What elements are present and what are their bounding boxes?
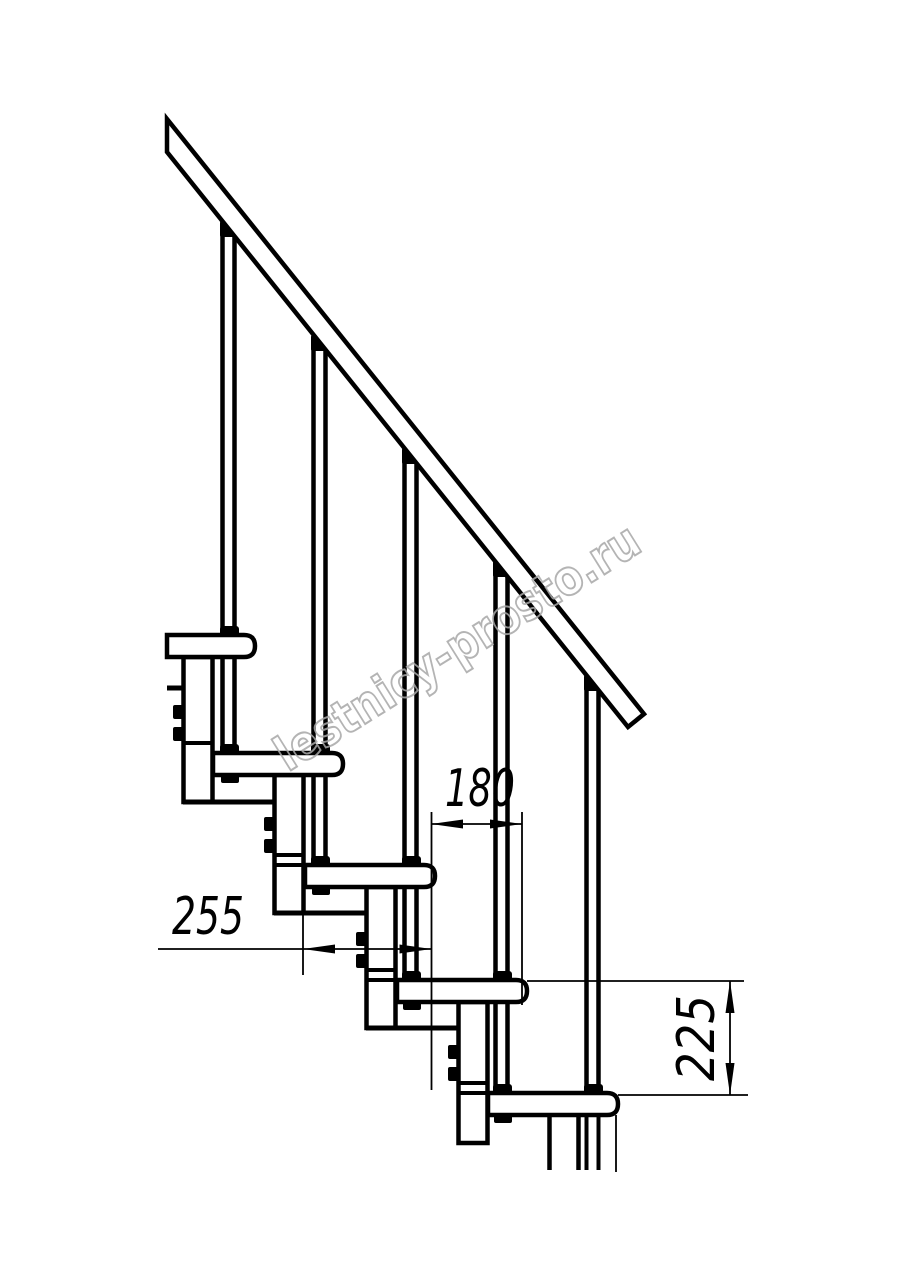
arrowhead-left-icon [431, 820, 463, 829]
column-bolt-icon [264, 817, 275, 831]
baluster-flange-icon [220, 744, 239, 755]
dimension-225: 225 [527, 981, 748, 1095]
dimension-label-run: 180 [445, 759, 515, 819]
baluster-1 [223, 225, 235, 758]
baluster-2 [314, 339, 326, 870]
column-bolt-icon [264, 839, 275, 853]
baluster-flange-icon [311, 856, 330, 867]
dimension-label-depth: 255 [172, 887, 244, 947]
baluster-5 [587, 679, 599, 1095]
tread-4 [397, 980, 527, 1002]
column-bolt-icon [173, 705, 184, 719]
staircase-drawing-canvas: 180 255 225 lestnicy-prosto.ru [0, 0, 914, 1280]
tread-1 [167, 635, 255, 657]
baluster-3 [405, 452, 417, 985]
baluster-flange-icon [402, 971, 421, 982]
column-bolt-icon [356, 954, 367, 968]
arrowhead-left-icon [303, 945, 335, 954]
tread-5 [488, 1093, 618, 1115]
column-bolt-icon [356, 932, 367, 946]
column-1 [184, 657, 213, 802]
baluster-flange-icon [493, 971, 512, 982]
baluster-flange-icon [493, 1084, 512, 1095]
column-bolt-icon [448, 1045, 459, 1059]
column-3 [367, 887, 396, 1028]
column-4 [459, 1002, 488, 1143]
tread-3 [305, 865, 435, 887]
baluster-nut-icon [312, 886, 330, 895]
baluster-nut-icon [494, 1114, 512, 1123]
staircase-technical-drawing: 180 255 225 lestnicy-prosto.ru [0, 0, 914, 1280]
baluster-nut-icon [221, 774, 239, 783]
column-2 [275, 775, 304, 913]
column-bolt-icon [448, 1067, 459, 1081]
baluster-nut-icon [403, 1001, 421, 1010]
baluster-flange-icon [402, 856, 421, 867]
column-bolt-icon [173, 727, 184, 741]
baluster-flange-icon [220, 626, 239, 637]
baluster-flange-icon [584, 1084, 603, 1095]
dimension-label-rise: 225 [667, 995, 727, 1081]
